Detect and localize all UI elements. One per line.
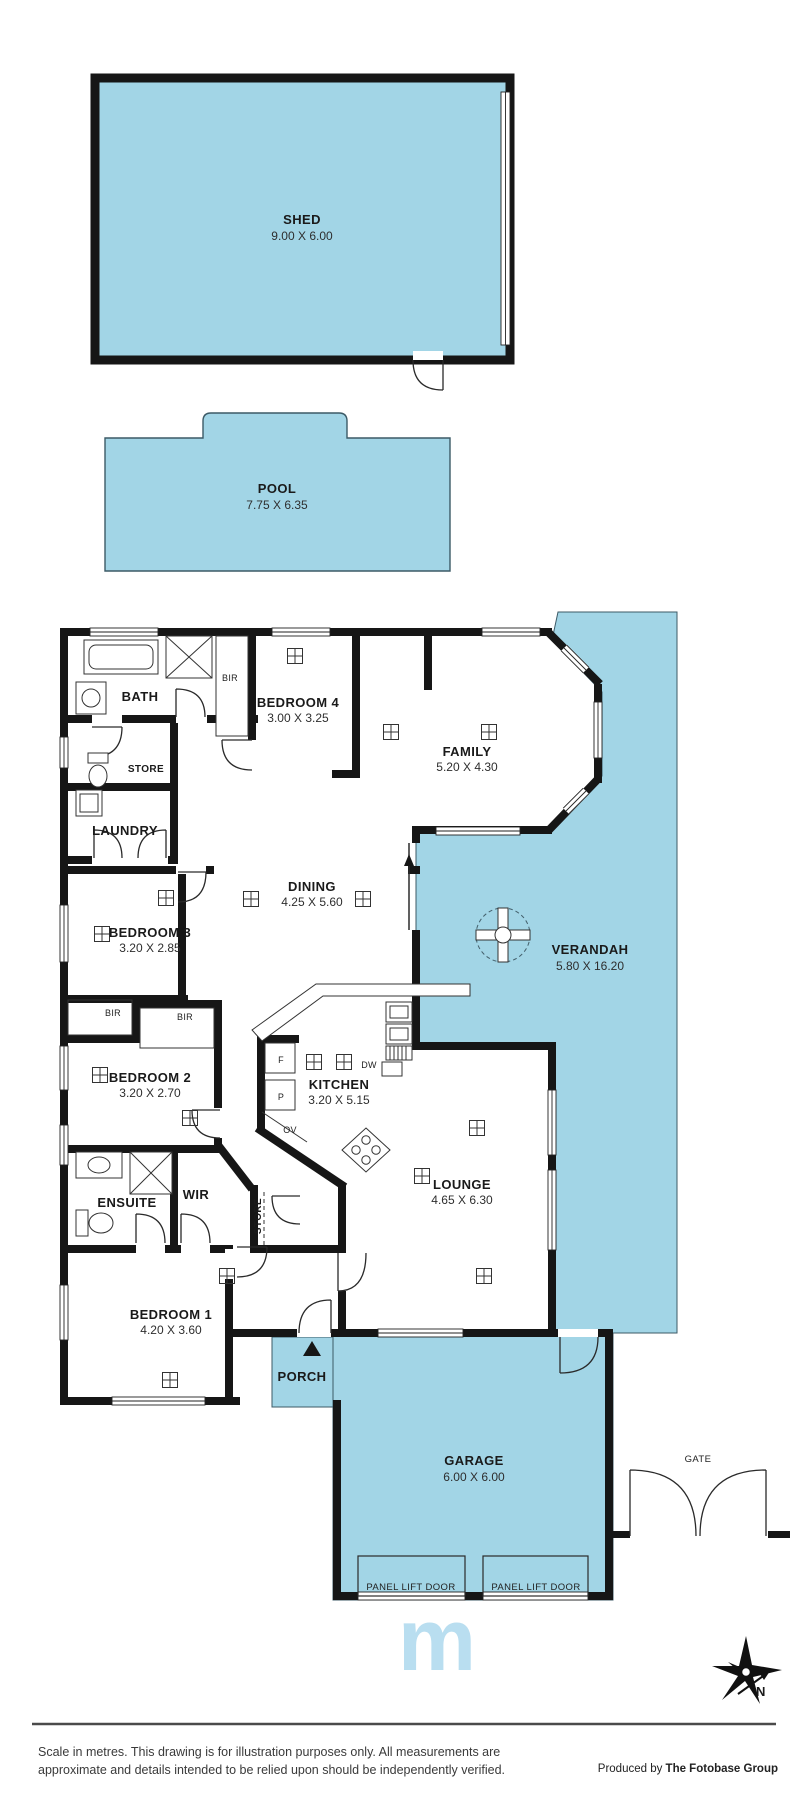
- verandah-dims: 5.80 X 16.20: [556, 959, 624, 973]
- light-symbol: [95, 927, 110, 942]
- shower: [130, 1152, 172, 1194]
- bir-closet-left: [68, 1000, 132, 1035]
- ceiling-fan: [476, 908, 530, 962]
- bedroom2-dims: 3.20 X 2.70: [119, 1086, 181, 1100]
- light-symbol: [337, 1055, 352, 1070]
- bathtub: [84, 640, 158, 674]
- bedroom4-label: BEDROOM 4: [257, 695, 340, 710]
- floorplan-page: SHED 9.00 X 6.00 POOL 7.75 X 6.35 BATH B…: [0, 0, 800, 1796]
- light-symbol: [159, 891, 174, 906]
- window: [548, 1170, 556, 1250]
- light-symbol: [183, 1111, 198, 1126]
- store-bottom-door: [272, 1196, 300, 1224]
- floorplan-drawing: SHED 9.00 X 6.00 POOL 7.75 X 6.35 BATH B…: [0, 0, 800, 1796]
- bedroom1-dims: 4.20 X 3.60: [140, 1323, 202, 1337]
- bedroom3-label: BEDROOM 3: [109, 925, 191, 940]
- pantry-label: P: [278, 1092, 284, 1102]
- disclaimer-line2: approximate and details intended to be r…: [38, 1763, 505, 1777]
- family-dims: 5.20 X 4.30: [436, 760, 498, 774]
- light-symbol: [244, 892, 259, 907]
- light-symbol: [384, 725, 399, 740]
- bir-top-label: BIR: [222, 673, 238, 683]
- porch-label: PORCH: [278, 1369, 327, 1384]
- store-top-label: STORE: [128, 764, 164, 775]
- kitchen-appliance-tower: [382, 1002, 412, 1076]
- dishwasher-label: DW: [361, 1060, 377, 1070]
- bath-label: BATH: [122, 689, 159, 704]
- light-symbol: [356, 892, 371, 907]
- footer: Scale in metres. This drawing is for ill…: [32, 1724, 778, 1777]
- family-label: FAMILY: [443, 744, 492, 759]
- verandah-label: VERANDAH: [552, 942, 629, 957]
- lounge-dims: 4.65 X 6.30: [431, 1193, 493, 1207]
- window: [548, 1090, 556, 1155]
- fridge-label: F: [278, 1055, 284, 1065]
- bir-right-label: BIR: [177, 1012, 193, 1022]
- window: [436, 827, 520, 835]
- window: [501, 92, 510, 345]
- light-symbol: [163, 1373, 178, 1388]
- gate-label: GATE: [685, 1454, 712, 1465]
- linen-cupboard: [166, 636, 212, 678]
- toilet: [88, 753, 108, 787]
- window: [60, 1125, 68, 1165]
- kitchen-dims: 3.20 X 5.15: [308, 1093, 370, 1107]
- light-symbol: [288, 649, 303, 664]
- window: [60, 905, 68, 962]
- light-symbol: [470, 1121, 485, 1136]
- produced-by: Produced by The Fotobase Group: [598, 1763, 778, 1775]
- bedroom4-dims: 3.00 X 3.25: [267, 711, 329, 725]
- ensuite-toilet: [76, 1210, 113, 1236]
- disclaimer-line1: Scale in metres. This drawing is for ill…: [38, 1745, 500, 1759]
- bedroom3-dims: 3.20 X 2.85: [119, 941, 181, 955]
- gate-door-right: [700, 1470, 766, 1536]
- laundry-tub: [76, 790, 102, 816]
- window: [60, 737, 68, 768]
- compass-icon: N: [712, 1636, 782, 1704]
- bedroom2-label: BEDROOM 2: [109, 1070, 191, 1085]
- garage-dims: 6.00 X 6.00: [443, 1470, 505, 1484]
- ensuite-label: ENSUITE: [97, 1195, 156, 1210]
- compass-north-label: N: [756, 1684, 765, 1699]
- oven-label: OV: [283, 1125, 297, 1135]
- window: [60, 1285, 68, 1340]
- bir-closet-top: [216, 636, 248, 736]
- light-symbol: [415, 1169, 430, 1184]
- verandah-area: [416, 612, 677, 1340]
- light-symbol: [307, 1055, 322, 1070]
- laundry-label: LAUNDRY: [92, 823, 158, 838]
- watermark-logo: m: [398, 1590, 476, 1689]
- kitchen-label: KITCHEN: [309, 1077, 370, 1092]
- store-bottom-label: STORE: [253, 1198, 264, 1234]
- light-symbol: [482, 725, 497, 740]
- window: [378, 1329, 463, 1337]
- window: [90, 628, 158, 636]
- bath-door: [176, 689, 205, 717]
- wir-label: WIR: [183, 1187, 210, 1202]
- dining-dims: 4.25 X 5.60: [281, 895, 343, 909]
- light-symbol: [93, 1068, 108, 1083]
- cooktop: [342, 1128, 390, 1172]
- window: [482, 628, 540, 636]
- pool-label: POOL: [258, 481, 296, 496]
- bedroom1-label: BEDROOM 1: [130, 1307, 212, 1322]
- wir-door: [181, 1214, 210, 1243]
- ensuite-door: [136, 1214, 165, 1243]
- lounge-label: LOUNGE: [433, 1177, 491, 1192]
- window: [272, 628, 330, 636]
- light-symbol: [477, 1269, 492, 1284]
- front-door: [299, 1300, 331, 1333]
- dining-label: DINING: [288, 879, 336, 894]
- window: [60, 1046, 68, 1090]
- shed-label: SHED: [283, 212, 321, 227]
- sliding-door: [404, 843, 414, 930]
- window: [594, 702, 602, 758]
- garage-label: GARAGE: [444, 1453, 503, 1468]
- bir-left-label: BIR: [105, 1008, 121, 1018]
- bath-vanity: [76, 682, 106, 714]
- bedroom4-door: [222, 740, 252, 770]
- ensuite-vanity: [76, 1152, 122, 1178]
- gate-door-left: [630, 1470, 696, 1536]
- pool-dims: 7.75 X 6.35: [246, 498, 308, 512]
- window: [112, 1397, 205, 1405]
- shed-dims: 9.00 X 6.00: [271, 229, 333, 243]
- outdoor-areas: [95, 78, 677, 1600]
- panel-lift-door-right-label: PANEL LIFT DOOR: [491, 1582, 580, 1593]
